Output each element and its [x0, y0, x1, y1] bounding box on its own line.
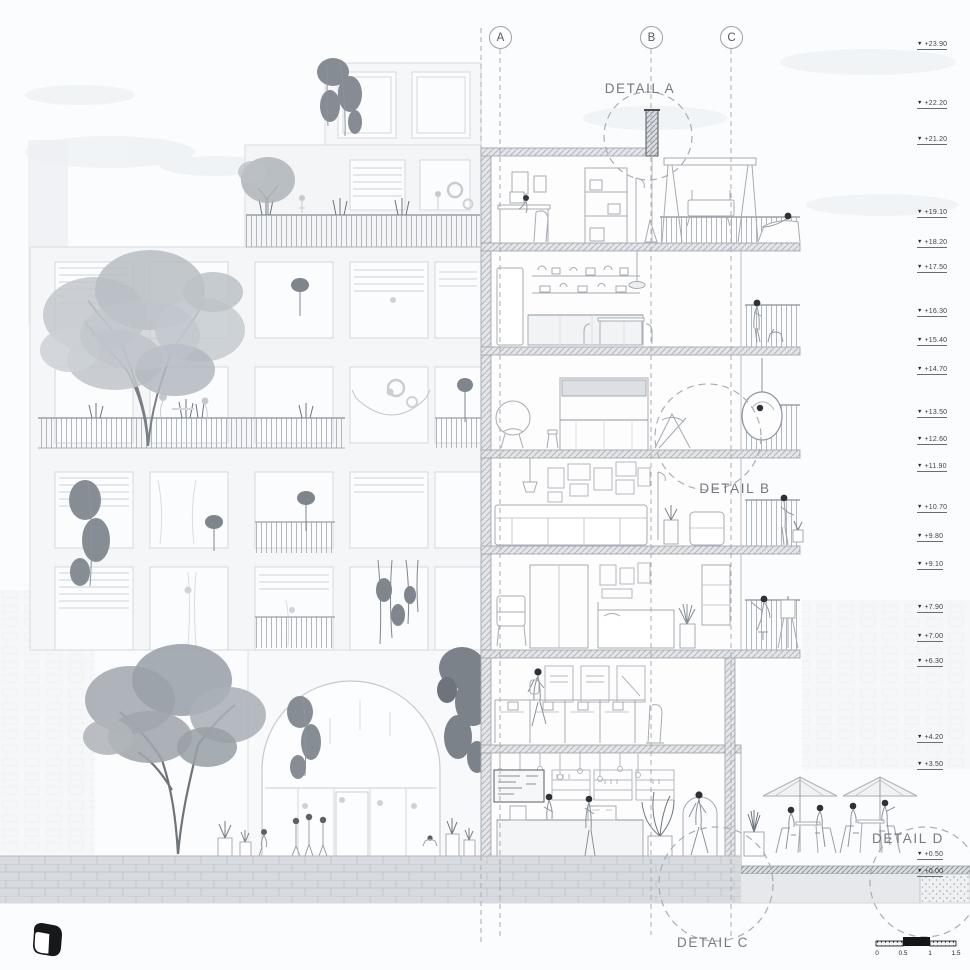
elevation-marker: ▼+6.30 — [917, 658, 943, 667]
elevation-marker: ▼+0.50 — [917, 851, 943, 860]
ground — [0, 856, 970, 903]
elevation-marker: ▼+23.90 — [917, 41, 947, 50]
elevation-marker: ▼+12.60 — [917, 436, 947, 445]
grid-axis-label: A — [497, 32, 505, 44]
level-triangle-icon: ▼ — [917, 869, 922, 875]
elevation-marker: ▼+11.90 — [917, 463, 947, 472]
elevation-marker: ▼+10.70 — [917, 504, 947, 513]
level-triangle-icon: ▼ — [917, 42, 922, 48]
level-triangle-icon: ▼ — [917, 101, 922, 107]
elevation-marker: ▼+9.80 — [917, 533, 943, 542]
level-triangle-icon: ▼ — [917, 735, 922, 741]
terrace-railing — [246, 215, 480, 247]
grid-axis-bubble-b: B — [640, 26, 663, 49]
level-triangle-icon: ▼ — [917, 210, 922, 216]
elevation-marker: ▼+4.20 — [917, 734, 943, 743]
balcony-railing — [745, 305, 800, 347]
level-triangle-icon: ▼ — [917, 309, 922, 315]
level-triangle-icon: ▼ — [917, 367, 922, 373]
elevation-marker: ▼+21.20 — [917, 136, 947, 145]
level-triangle-icon: ▼ — [917, 762, 922, 768]
elevation-marker: ▼+9.10 — [917, 561, 943, 570]
grid-axis-label: C — [727, 32, 735, 44]
balcony-railing-large — [38, 418, 345, 448]
elevation-marker: ▼+16.30 — [917, 308, 947, 317]
level-triangle-icon: ▼ — [917, 410, 922, 416]
elevation-marker: ▼+7.90 — [917, 604, 943, 613]
detail-a-label: DETAIL A — [585, 81, 695, 96]
section-cut-wall — [481, 148, 491, 866]
building-section-illustration: A B C DETAIL A DETAIL B DETAIL C DETAIL … — [0, 0, 970, 970]
detail-c-label: DETAIL C — [658, 935, 768, 950]
level-triangle-icon: ▼ — [917, 464, 922, 470]
level-triangle-icon: ▼ — [917, 505, 922, 511]
grid-axis-bubble-a: A — [489, 26, 512, 49]
elevation-marker: ▼+0.00 — [917, 868, 943, 877]
grid-axis-bubble-c: C — [720, 26, 743, 49]
level-triangle-icon: ▼ — [917, 605, 922, 611]
scale-bar — [876, 937, 956, 946]
level-triangle-icon: ▼ — [917, 659, 922, 665]
umbrella — [763, 777, 837, 852]
level-triangle-icon: ▼ — [917, 338, 922, 344]
level-triangle-icon: ▼ — [917, 240, 922, 246]
scale-label-15: 1.5 — [951, 950, 960, 957]
scale-label-0: 0 — [875, 950, 879, 957]
elevation-marker: ▼+7.00 — [917, 633, 943, 642]
drawing-svg — [0, 0, 970, 970]
level-triangle-icon: ▼ — [917, 534, 922, 540]
scale-label-1: 1 — [928, 950, 932, 957]
level-triangle-icon: ▼ — [917, 852, 922, 858]
level-triangle-icon: ▼ — [917, 137, 922, 143]
level-triangle-icon: ▼ — [917, 265, 922, 271]
elevation-marker: ▼+17.50 — [917, 264, 947, 273]
elevation-marker: ▼+13.50 — [917, 409, 947, 418]
level-triangle-icon: ▼ — [917, 562, 922, 568]
large-tree-ground — [83, 644, 266, 854]
elevation-marker: ▼+22.20 — [917, 100, 947, 109]
detail-d-label: DETAIL D — [853, 831, 963, 846]
column — [725, 658, 735, 866]
level-triangle-icon: ▼ — [917, 437, 922, 443]
elevation-marker: ▼+15.40 — [917, 337, 947, 346]
elevation-marker: ▼+14.70 — [917, 366, 947, 375]
hanging-egg-chair — [742, 358, 782, 440]
level-triangle-icon: ▼ — [917, 634, 922, 640]
elevation-marker: ▼+3.50 — [917, 761, 943, 770]
elevation-marker: ▼+19.10 — [917, 209, 947, 218]
elevation-marker: ▼+18.20 — [917, 239, 947, 248]
detail-b-label: DETAIL B — [680, 481, 790, 496]
scale-label-05: 0.5 — [898, 950, 907, 957]
studio-logo — [33, 923, 62, 956]
grid-axis-label: B — [648, 32, 656, 44]
roof-parapet — [646, 110, 658, 156]
